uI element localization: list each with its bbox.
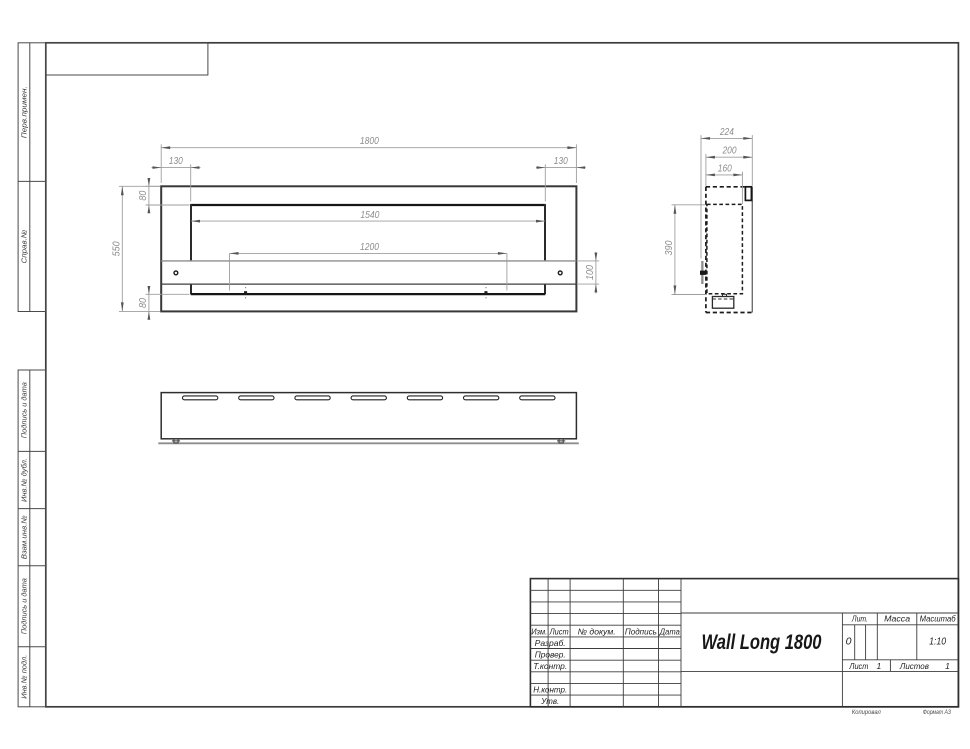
svg-text:Утв.: Утв. bbox=[540, 696, 559, 706]
svg-text:130: 130 bbox=[169, 155, 183, 167]
svg-text:Подпись и дата: Подпись и дата bbox=[19, 578, 28, 634]
svg-text:Инв.№ подл.: Инв.№ подл. bbox=[19, 655, 28, 699]
svg-text:1: 1 bbox=[945, 661, 950, 671]
svg-text:Инв.№ дубл.: Инв.№ дубл. bbox=[20, 458, 29, 502]
svg-text:Подпись: Подпись bbox=[625, 626, 657, 636]
svg-text:Копировал: Копировал bbox=[852, 709, 881, 716]
svg-text:80: 80 bbox=[137, 190, 149, 200]
svg-text:1:10: 1:10 bbox=[929, 636, 946, 648]
svg-text:Масштаб: Масштаб bbox=[920, 614, 957, 624]
svg-text:Лист: Лист bbox=[549, 626, 569, 636]
svg-text:1540: 1540 bbox=[360, 209, 379, 221]
svg-text:№ докум.: № докум. bbox=[578, 626, 616, 636]
svg-text:Лист: Лист bbox=[849, 661, 869, 671]
svg-text:1800: 1800 bbox=[360, 135, 379, 147]
svg-text:Т.контр.: Т.контр. bbox=[533, 661, 567, 671]
svg-text:Дата: Дата bbox=[659, 626, 680, 636]
svg-text:Формат А3: Формат А3 bbox=[923, 709, 951, 716]
svg-text:200: 200 bbox=[722, 145, 737, 157]
svg-text:Лит.: Лит. bbox=[851, 614, 868, 624]
svg-text:Масса: Масса bbox=[884, 614, 910, 624]
svg-text:Справ.№: Справ.№ bbox=[20, 230, 29, 264]
svg-text:Листов: Листов bbox=[899, 661, 929, 671]
svg-text:1: 1 bbox=[877, 661, 882, 671]
svg-text:390: 390 bbox=[663, 240, 675, 255]
svg-text:100: 100 bbox=[584, 265, 596, 280]
svg-text:0: 0 bbox=[846, 636, 852, 648]
svg-text:Wall Long 1800: Wall Long 1800 bbox=[702, 631, 822, 654]
svg-text:Н.контр.: Н.контр. bbox=[533, 685, 567, 695]
svg-text:Изм.: Изм. bbox=[531, 626, 547, 636]
svg-text:160: 160 bbox=[718, 162, 732, 174]
svg-text:Взам.инв.№: Взам.инв.№ bbox=[19, 515, 28, 559]
svg-text:Подпись и дата: Подпись и дата bbox=[19, 382, 28, 438]
svg-text:80: 80 bbox=[137, 298, 149, 308]
svg-text:Провер.: Провер. bbox=[535, 650, 566, 660]
svg-text:1200: 1200 bbox=[360, 241, 379, 253]
svg-text:Перв.примен.: Перв.примен. bbox=[20, 86, 29, 138]
svg-text:Разраб.: Разраб. bbox=[535, 638, 566, 648]
svg-text:130: 130 bbox=[554, 155, 568, 167]
svg-text:224: 224 bbox=[719, 126, 734, 138]
svg-text:550: 550 bbox=[110, 241, 122, 256]
